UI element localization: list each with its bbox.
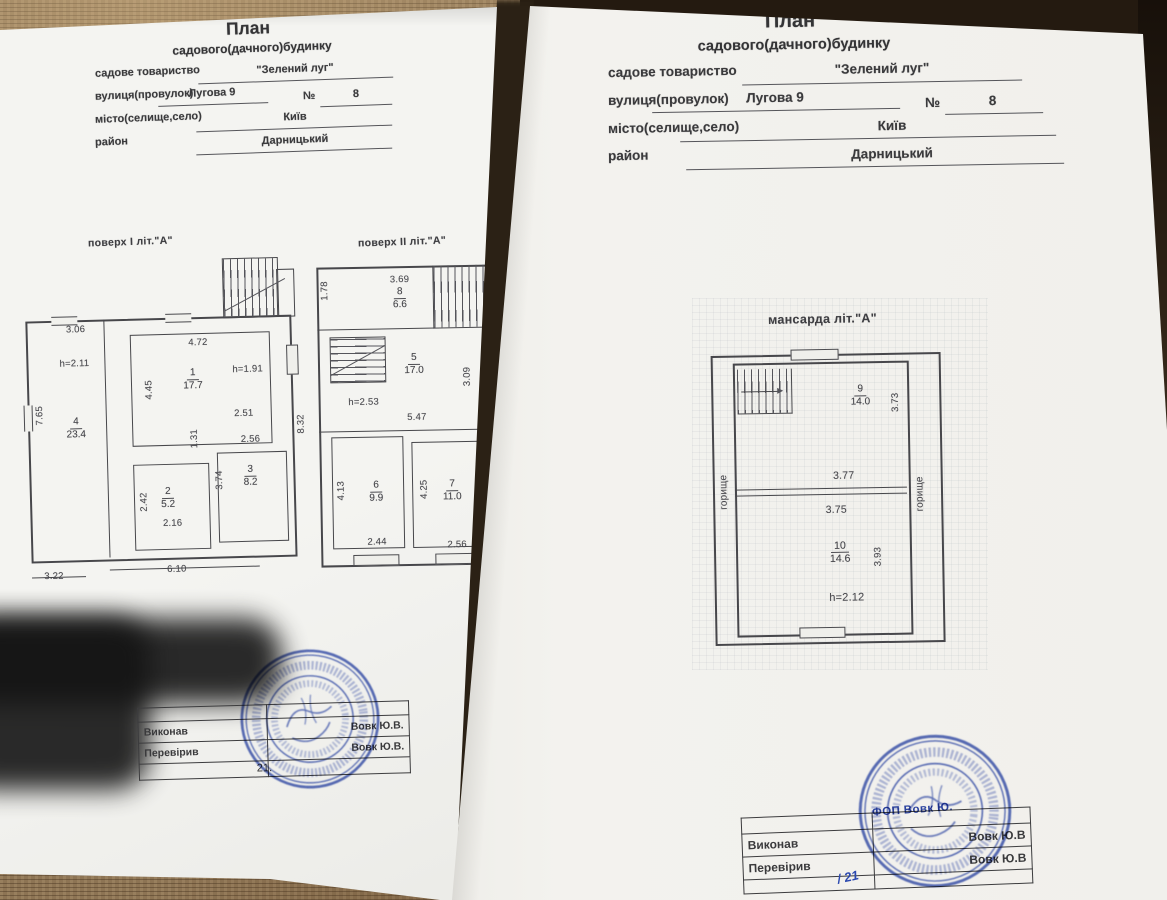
room2-area: 5.2	[161, 498, 175, 510]
form-line	[198, 61, 393, 85]
room2-number: 2	[162, 486, 174, 499]
plan2-title: поверх II літ."А"	[358, 234, 446, 249]
room1-area: 17.7	[183, 379, 203, 392]
window-bay	[286, 344, 299, 374]
room9-label: 9 14.0	[841, 383, 879, 408]
form-line	[652, 88, 900, 113]
room4-label: 4 23.4	[58, 416, 95, 441]
room10-number: 10	[831, 540, 849, 553]
dim-room4-width: 3.06	[51, 324, 99, 336]
dim-room6-width: 2.44	[357, 536, 397, 548]
dim-corridor: 1.31	[188, 419, 200, 459]
dim-room9-depth: 3.73	[890, 384, 902, 420]
room1-number: 1	[187, 367, 199, 380]
room3-number: 3	[244, 464, 256, 477]
form-line	[686, 143, 1064, 171]
dim-room10-depth: 3.93	[872, 539, 884, 575]
document-subtitle: садового(дачного)будинку	[138, 37, 366, 59]
room10-area: 14.6	[830, 553, 851, 566]
room1-label: 1 17.7	[175, 367, 212, 392]
dim-room1-depth: 4.45	[143, 370, 155, 410]
dim-309: 3.09	[461, 358, 473, 394]
room7-area: 11.0	[443, 491, 462, 503]
room9-number: 9	[854, 383, 866, 396]
room6-area: 9.9	[369, 492, 383, 504]
room8-area: 6.6	[393, 299, 407, 311]
dim-room4-length: 7.65	[34, 396, 46, 436]
form-line	[945, 92, 1043, 115]
room8-label: 8 6.6	[385, 286, 415, 311]
room3-label: 3 8.2	[233, 463, 268, 488]
dim-room2-width: 2.16	[153, 517, 193, 529]
room2-label: 2 5.2	[152, 486, 185, 511]
dim-room2-depth: 2.42	[138, 482, 150, 522]
house-number-label: №	[925, 95, 940, 110]
room7-number: 7	[446, 478, 458, 491]
room7-label: 7 11.0	[434, 478, 470, 503]
dim-room9-width: 3.77	[821, 469, 867, 482]
form-line	[320, 88, 393, 108]
window	[799, 627, 845, 639]
attic-label-right: горище	[914, 469, 926, 519]
dim-room10-width: 3.75	[813, 503, 859, 516]
round-stamp	[229, 638, 392, 801]
form-line	[196, 132, 392, 156]
dim-building-depth: 8.32	[295, 404, 307, 444]
society-label: садове товариство	[608, 63, 737, 80]
dim-mansard-height-label: h=2.12	[817, 591, 877, 604]
dim-bottom-left: 3.22	[34, 570, 74, 582]
dim-room1-height-label: h=1.91	[221, 363, 275, 375]
room6-label: 6 9.9	[360, 479, 392, 504]
room10-label: 10 14.6	[820, 539, 860, 565]
room9-area: 14.0	[851, 396, 871, 408]
dim-room3-depth: 3.74	[214, 460, 226, 500]
plan1-title: поверх I літ."А"	[88, 235, 173, 250]
stair-arrow-head	[777, 388, 783, 394]
room4-number: 4	[70, 416, 82, 429]
room4-area: 23.4	[66, 429, 86, 442]
dim-room1-width: 4.72	[176, 337, 220, 349]
society-label: садове товариство	[95, 64, 200, 80]
attic-label-left: горище	[718, 467, 730, 517]
room5-number: 5	[408, 352, 420, 365]
window	[791, 349, 839, 361]
floorplan-first-floor: 3.06 h=2.11 7.65 4 23.4 4.72 1 17.7 h=1.…	[24, 248, 305, 595]
plan3-title: мансарда літ."А"	[768, 311, 877, 327]
dim-251: 2.51	[224, 407, 264, 419]
window	[24, 405, 34, 431]
dim-room6-depth: 4.13	[335, 473, 347, 509]
dim-bottom-width: 6.10	[152, 563, 202, 575]
district-label: район	[608, 148, 649, 164]
form-line	[158, 86, 269, 107]
dim-room5-width: 5.47	[395, 411, 439, 423]
room5-label: 5 17.0	[396, 352, 432, 377]
staircase-landing	[276, 269, 295, 317]
dim-room7-depth: 4.25	[418, 471, 430, 507]
room5-area: 17.0	[404, 364, 424, 376]
dim-room8-depth: 1.78	[319, 273, 331, 309]
document-subtitle: садового(дачного)будинку	[638, 34, 950, 55]
dark-shadow-object	[0, 618, 150, 790]
dim-room4-height-label: h=2.11	[44, 358, 104, 371]
dim-room3-width: 2.56	[230, 433, 270, 445]
window	[165, 313, 191, 323]
floorplan-mansard: 9 14.0 3.73 3.77 3.75 10 14.6 3.93 h=2.1…	[702, 328, 953, 657]
district-label: район	[95, 135, 128, 148]
house-number-label: №	[303, 90, 316, 102]
city-label: місто(селище,село)	[95, 110, 202, 126]
document-title: План	[196, 16, 301, 41]
form-line	[742, 60, 1022, 86]
dim-room8-width: 3.69	[377, 274, 421, 286]
photo-of-house-plan-documents: План садового(дачного)будинку садове тов…	[0, 0, 1167, 900]
room8-number: 8	[394, 286, 406, 299]
window	[353, 554, 399, 566]
staircase	[222, 257, 280, 318]
form-line	[196, 109, 392, 133]
room3-area: 8.2	[243, 476, 257, 488]
dim-room5-height-label: h=2.53	[337, 396, 391, 408]
room6-number: 6	[370, 480, 382, 493]
